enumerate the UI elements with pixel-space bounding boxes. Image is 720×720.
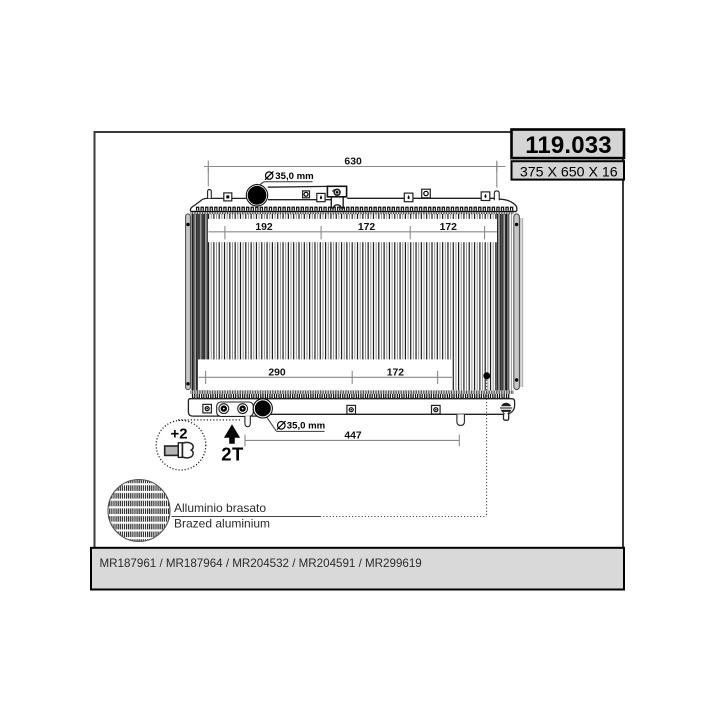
svg-text:2T: 2T (221, 443, 244, 464)
svg-text:MR187961 / MR187964 / MR204532: MR187961 / MR187964 / MR204532 / MR20459… (100, 557, 422, 570)
svg-text:192: 192 (255, 222, 273, 233)
svg-text:172: 172 (387, 368, 405, 379)
svg-text:+2: +2 (171, 426, 188, 442)
svg-text:35,0 mm: 35,0 mm (287, 421, 325, 432)
svg-text:290: 290 (268, 368, 286, 379)
svg-text:375 X 650 X 16: 375 X 650 X 16 (520, 164, 618, 180)
svg-text:447: 447 (344, 431, 362, 442)
svg-text:172: 172 (440, 222, 458, 233)
svg-text:119.033: 119.033 (525, 132, 611, 159)
svg-text:630: 630 (344, 157, 362, 168)
svg-text:35,0 mm: 35,0 mm (275, 171, 313, 182)
svg-text:172: 172 (358, 222, 376, 233)
svg-text:Alluminio brasato: Alluminio brasato (174, 501, 266, 515)
svg-text:Brazed aluminium: Brazed aluminium (174, 516, 270, 530)
